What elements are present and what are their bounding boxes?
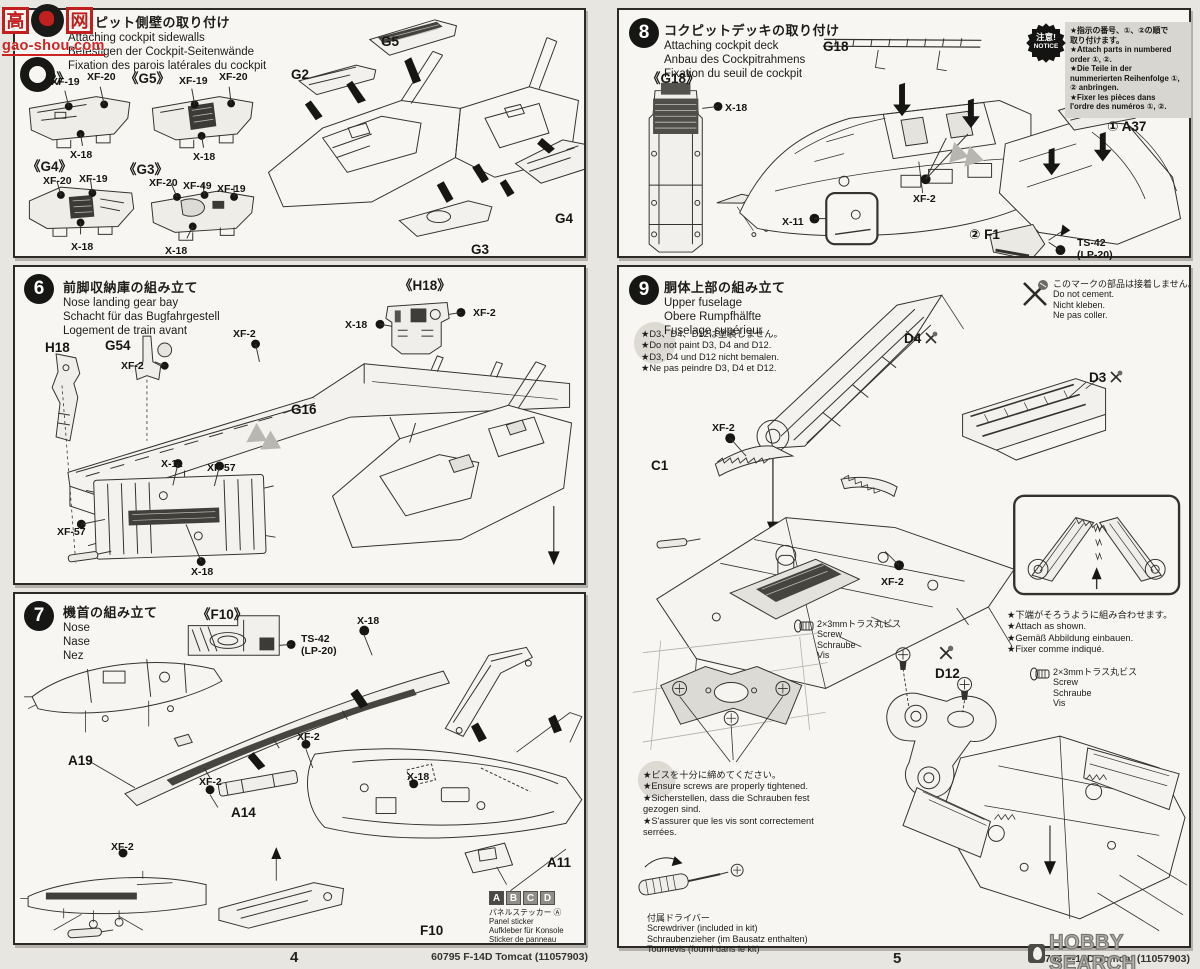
hobby-search-flame-icon	[1028, 944, 1045, 963]
paint-label: X-18	[70, 150, 92, 161]
paint-code: TS-42	[1077, 237, 1106, 249]
line: ★D3、D4、D12は塗装しません。	[641, 329, 783, 340]
sticker-letter-d: D	[540, 891, 555, 905]
line: Screwdriver (included in kit)	[647, 923, 808, 933]
line: ★Do not paint D3, D4 and D12.	[641, 340, 783, 351]
drawing-panel-g2	[299, 65, 376, 95]
paint-label: X-18	[193, 152, 215, 163]
glue-applicator-icon	[657, 537, 701, 548]
paint-label: X-18	[191, 567, 213, 578]
gaoshou-logo-row: 高 网	[2, 4, 105, 37]
line: Tournevis (fourni dans le kit)	[647, 944, 808, 954]
part-label-g3: G3	[471, 243, 489, 257]
step-6-box: 6 前脚収納庫の組み立て Nose landing gear bay Schac…	[13, 265, 586, 585]
drawing-sticker-part	[465, 843, 512, 885]
page-number-left: 4	[290, 950, 298, 966]
line: ★Attach as shown.	[1007, 621, 1172, 632]
notice-badge-en: NOTICE	[1025, 43, 1067, 50]
do-not-cement-icon	[938, 645, 954, 666]
title-de: Obere Rumpfhälfte	[664, 310, 786, 324]
part-label-a14: A14	[231, 806, 256, 820]
line: ★S'assurer que les vis sont correctement	[643, 816, 814, 827]
screw-icon	[794, 619, 816, 638]
step-number: 6	[24, 274, 54, 304]
line: Vis	[1053, 698, 1137, 708]
title-fr: Logement de train avant	[63, 324, 220, 338]
paint-label: XF-49	[183, 181, 212, 192]
paint-label: X-18	[725, 103, 747, 114]
paint-label: X-18	[357, 616, 379, 627]
line: Screw	[1053, 677, 1137, 687]
inset-label-g18: 《G18》	[647, 72, 700, 86]
paint-label-ts42: TS-42 (LP-20)	[301, 634, 337, 657]
inset-label-f10: 《F10》	[197, 608, 247, 622]
step-7-box: 7 機首の組み立て Nose Nase Nez 《F10》 TS-42 (LP-…	[13, 592, 586, 945]
title-en: Upper fuselage	[664, 296, 786, 310]
paint-label: X-18	[345, 320, 367, 331]
part-code: D4	[904, 331, 921, 346]
part-label-c1: C1	[651, 459, 668, 473]
inset-label-h18: 《H18》	[399, 279, 451, 293]
drawing-panel-g3	[399, 201, 491, 236]
title-fr: Nez	[63, 649, 158, 663]
drawing-nose-side-view	[20, 871, 206, 938]
paint-label-ts42: TS-42 (LP-20)	[1077, 238, 1113, 261]
tighten-screws-note: ★ビスを十分に締めてください。 ★Ensure screws are prope…	[643, 770, 814, 838]
panel-sticker-note: パネルステッカー Ⓐ Panel sticker Aufkleber für K…	[489, 909, 564, 945]
line: ★D3, D4 und D12 nicht bemalen.	[641, 352, 783, 363]
part-label-g5: G5	[381, 35, 399, 49]
line: Do not cement.	[1053, 289, 1197, 299]
line: ★Attach parts in numbered	[1070, 45, 1186, 55]
do-not-cement-icon	[1020, 279, 1050, 314]
step-6-title: 前脚収納庫の組み立て Nose landing gear bay Schacht…	[63, 279, 220, 338]
drawing-part-g5	[152, 87, 252, 148]
paint-label: XF-2	[297, 732, 320, 743]
drawing-mesh-inset	[1014, 496, 1179, 594]
title-ja: 胴体上部の組み立て	[664, 279, 786, 296]
paint-label: XF-20	[149, 178, 178, 189]
screwdriver-icon	[638, 856, 743, 896]
paint-label: XF-57	[57, 527, 86, 538]
paint-label: X-11	[161, 459, 183, 470]
do-not-cement-icon	[1109, 370, 1123, 387]
paint-label: XF-2	[199, 777, 222, 788]
line: ★Fixer les pièces dans	[1070, 93, 1186, 103]
paint-label: XF-2	[233, 329, 256, 340]
step-number: 8	[629, 18, 659, 48]
part-label-a11: A11	[547, 856, 571, 870]
title-de: Schacht für das Bugfahrgestell	[63, 310, 220, 324]
paint-label: XF-2	[121, 361, 144, 372]
watermark-char-right: 网	[66, 7, 93, 34]
notice-panel: ★指示の番号、①、②の順で 取り付けます。 ★Attach parts in n…	[1065, 22, 1191, 118]
line: ★Ne pas peindre D3, D4 et D12.	[641, 363, 783, 374]
line: Schraube	[817, 640, 901, 650]
line: ② anbringen.	[1070, 83, 1186, 93]
watermark-ring	[20, 57, 55, 92]
paint-label: XF-19	[179, 76, 208, 87]
hobby-search-text: HOBBY SEARCH	[1049, 932, 1200, 969]
drawing-h18-inset	[376, 303, 466, 354]
line: ★指示の番号、①、②の順で	[1070, 26, 1186, 36]
drawing-part-c1	[657, 518, 1014, 689]
notice-badge-ja: 注意!	[1025, 33, 1067, 42]
paint-label: X-11	[782, 217, 804, 228]
line: ★Gemäß Abbildung einbauen.	[1007, 633, 1172, 644]
paint-label: XF-20	[219, 72, 248, 83]
title-ja: 前脚収納庫の組み立て	[63, 279, 220, 296]
part-code: D3	[1089, 370, 1106, 385]
line: serrées.	[643, 827, 814, 838]
paint-label: XF-2	[111, 842, 134, 853]
step-number: 7	[24, 601, 54, 631]
notice-badge: 注意! NOTICE	[1025, 22, 1067, 64]
page-number-right: 5	[893, 951, 901, 967]
line: Screw	[817, 629, 901, 639]
paint-code: TS-42	[301, 633, 330, 645]
inset-label-g4: 《G4》	[27, 160, 72, 174]
drawing-a14-sill	[218, 770, 298, 796]
line: Nicht kleben.	[1053, 300, 1197, 310]
part-label-a37: ① A37	[1107, 120, 1146, 134]
drawing-part-g4	[29, 179, 133, 236]
line: Schraube	[1053, 688, 1137, 698]
part-label-h18: H18	[45, 341, 70, 355]
instruction-sheet: コクピット側壁の取り付け Attaching cockpit sidewalls…	[0, 0, 1200, 969]
attach-as-shown-note: ★下端がそろうように組み合わせます。 ★Attach as shown. ★Ge…	[1007, 610, 1172, 656]
paint-label: XF-2	[473, 308, 496, 319]
line: ★下端がそろうように組み合わせます。	[1007, 610, 1172, 621]
title-de: Anbau des Cockpitrahmens	[664, 53, 840, 67]
inset-label-g3: 《G3》	[123, 163, 168, 177]
line: ★ビスを十分に締めてください。	[643, 770, 814, 781]
title-ja: 機首の組み立て	[63, 604, 158, 621]
gear-icon	[31, 4, 64, 37]
drawing-g18-frame	[649, 83, 722, 252]
line: l'ordre des numéros ①, ②.	[1070, 102, 1186, 112]
line: 2×3mmトラス丸ビス	[817, 619, 901, 629]
part-label-g4: G4	[555, 212, 573, 226]
line: 付属ドライバー	[647, 913, 808, 923]
line: order ①, ②.	[1070, 55, 1186, 65]
title-en: Attaching cockpit deck	[664, 39, 840, 53]
part-code: D12	[935, 666, 960, 681]
do-not-cement-note: このマークの部品は接着しません。 Do not cement. Nicht kl…	[1053, 279, 1197, 321]
drawing-nose-top-view	[24, 659, 222, 746]
part-label-g16: G16	[291, 403, 317, 417]
part-label-d4: D4	[904, 331, 938, 348]
kit-code-left: 60795 F-14D Tomcat (11057903)	[398, 951, 588, 963]
line: 2×3mmトラス丸ビス	[1053, 667, 1137, 677]
screw-callout: 2×3mmトラス丸ビス Screw Schraube Vis	[817, 619, 901, 661]
line: ★Ensure screws are properly tightened.	[643, 781, 814, 792]
drawing-tooth-arc	[839, 468, 898, 504]
paint-label: XF-2	[881, 577, 904, 588]
drawing-nose-fuselage	[307, 713, 581, 838]
part-label-g54: G54	[105, 339, 131, 353]
line: ★Sicherstellen, dass die Schrauben fest	[643, 793, 814, 804]
paint-label: XF-20	[87, 72, 116, 83]
line: Sticker de panneau	[489, 936, 564, 945]
sticker-letter-b: B	[506, 891, 521, 905]
drawing-part-d3	[963, 377, 1106, 460]
drawing-cockpit-assembly	[269, 20, 584, 236]
paint-label: XF-2	[712, 423, 735, 434]
paint-label: X-18	[407, 772, 429, 783]
part-label-g2: G2	[291, 68, 309, 82]
part-label-f1: ② F1	[969, 228, 1000, 242]
step-7-title: 機首の組み立て Nose Nase Nez	[63, 604, 158, 663]
paint-label: XF-19	[217, 184, 246, 195]
inset-label-g5: 《G5》	[125, 72, 170, 86]
title-de: Nase	[63, 635, 158, 649]
screwdriver-note: 付属ドライバー Screwdriver (included in kit) Sc…	[647, 913, 808, 955]
watermark-char-left: 高	[2, 7, 29, 34]
line: Vis	[817, 650, 901, 660]
paint-label: XF-19	[51, 77, 80, 88]
do-not-cement-icon	[924, 331, 938, 348]
paint-label: X-18	[71, 242, 93, 253]
part-label-d12: D12	[935, 667, 960, 681]
line: Schraubenzieher (im Bausatz enthalten)	[647, 934, 808, 944]
paint-label: XF-19	[79, 174, 108, 185]
drawing-windshield-frame	[445, 647, 532, 736]
sticker-letter-a: A	[489, 891, 504, 905]
line: ★Fixer comme indiqué.	[1007, 644, 1172, 655]
title-ja: コクピットデッキの取り付け	[664, 22, 840, 39]
line: nummerierten Reihenfolge ①,	[1070, 74, 1186, 84]
part-label-d3: D3	[1089, 370, 1123, 387]
paint-label: X-18	[165, 246, 187, 257]
paint-alt: (LP-20)	[301, 645, 337, 657]
step-8-box: 8 コクピットデッキの取り付け Attaching cockpit deck A…	[617, 8, 1191, 258]
part-label-a19: A19	[68, 754, 93, 768]
line: Ne pas coller.	[1053, 310, 1197, 320]
part-label-g18: G18	[823, 40, 849, 54]
hobby-search-watermark: HOBBY SEARCH	[1028, 933, 1200, 969]
part-label-f10: F10	[420, 924, 443, 938]
do-not-paint-note: ★D3、D4、D12は塗装しません。 ★Do not paint D3, D4 …	[641, 329, 783, 375]
line: このマークの部品は接着しません。	[1053, 279, 1197, 289]
step-9-box: 9 胴体上部の組み立て Upper fuselage Obere Rumpfhä…	[617, 265, 1191, 948]
drawing-f10-part	[219, 847, 344, 928]
gaoshou-watermark: 高 网 gao-shou.com	[2, 4, 105, 56]
screw-icon	[1030, 667, 1052, 686]
drawing-part-g54	[135, 336, 172, 441]
line: ★Die Teile in der	[1070, 64, 1186, 74]
drawing-part-g2	[29, 87, 129, 148]
line: 取り付けます。	[1070, 36, 1186, 46]
paint-label: XF-2	[913, 194, 936, 205]
sticker-letter-c: C	[523, 891, 538, 905]
paint-alt: (LP-20)	[1077, 249, 1113, 261]
title-en: Nose landing gear bay	[63, 296, 220, 310]
panel-sticker-letters: A B C D	[489, 891, 555, 905]
paint-label: XF-57	[207, 463, 236, 474]
screw-callout: 2×3mmトラス丸ビス Screw Schraube Vis	[1053, 667, 1137, 709]
watermark-site-text: gao-shou.com	[2, 39, 105, 56]
paint-label: XF-20	[43, 176, 72, 187]
line: gezogen sind.	[643, 804, 814, 815]
title-en: Nose	[63, 621, 158, 635]
step-number: 9	[629, 275, 659, 305]
